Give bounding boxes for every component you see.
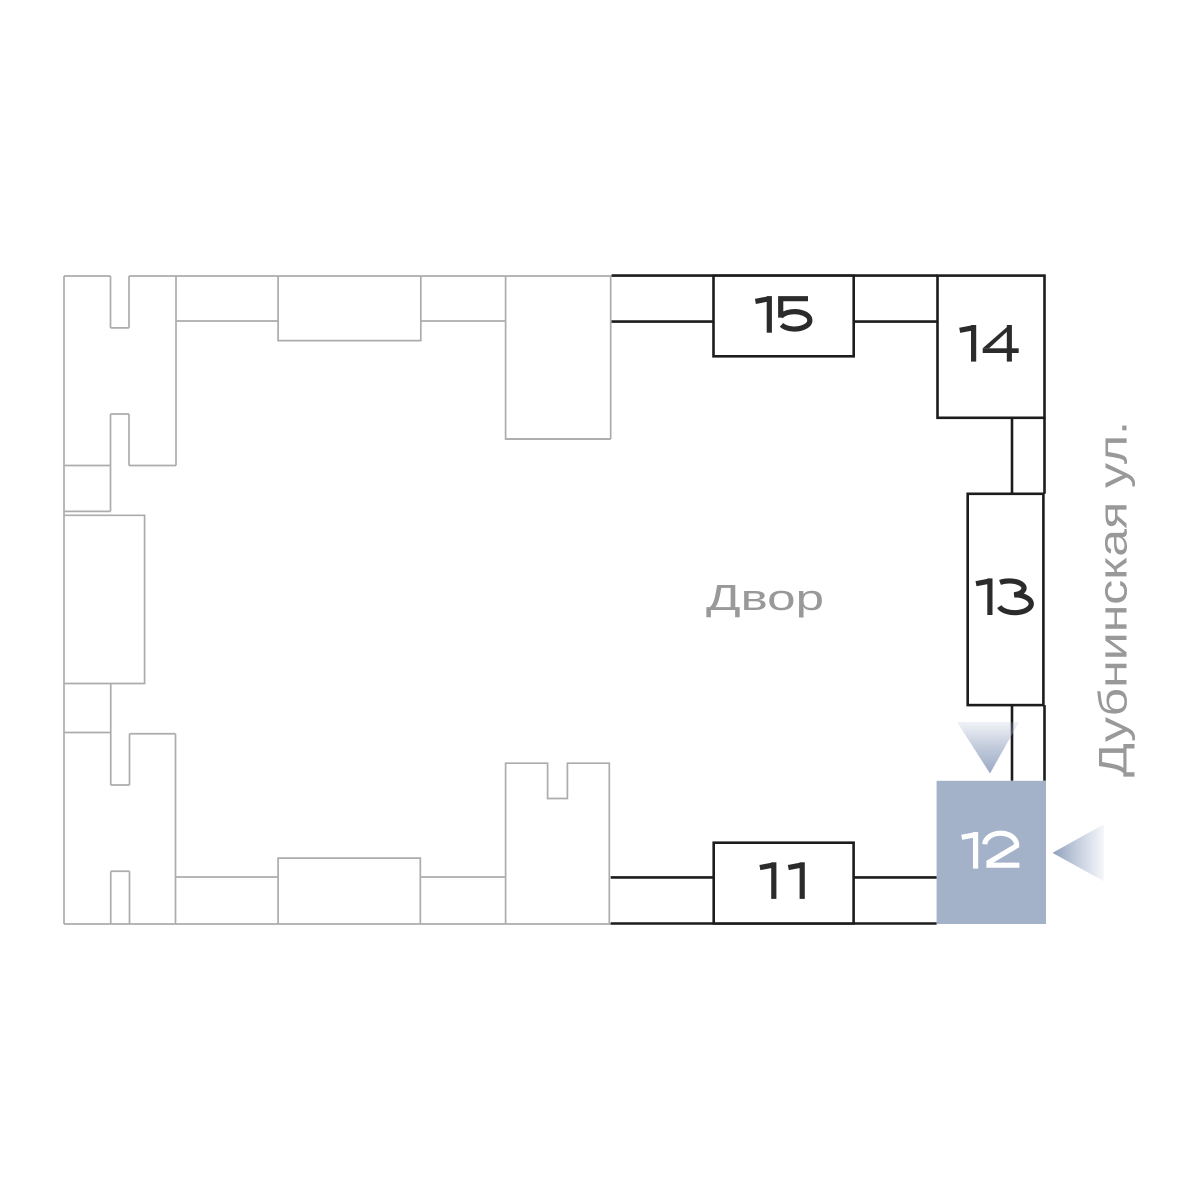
svg-text:Двор: Двор [706, 577, 824, 618]
svg-text:Дубнинская ул.: Дубнинская ул. [1091, 421, 1135, 777]
